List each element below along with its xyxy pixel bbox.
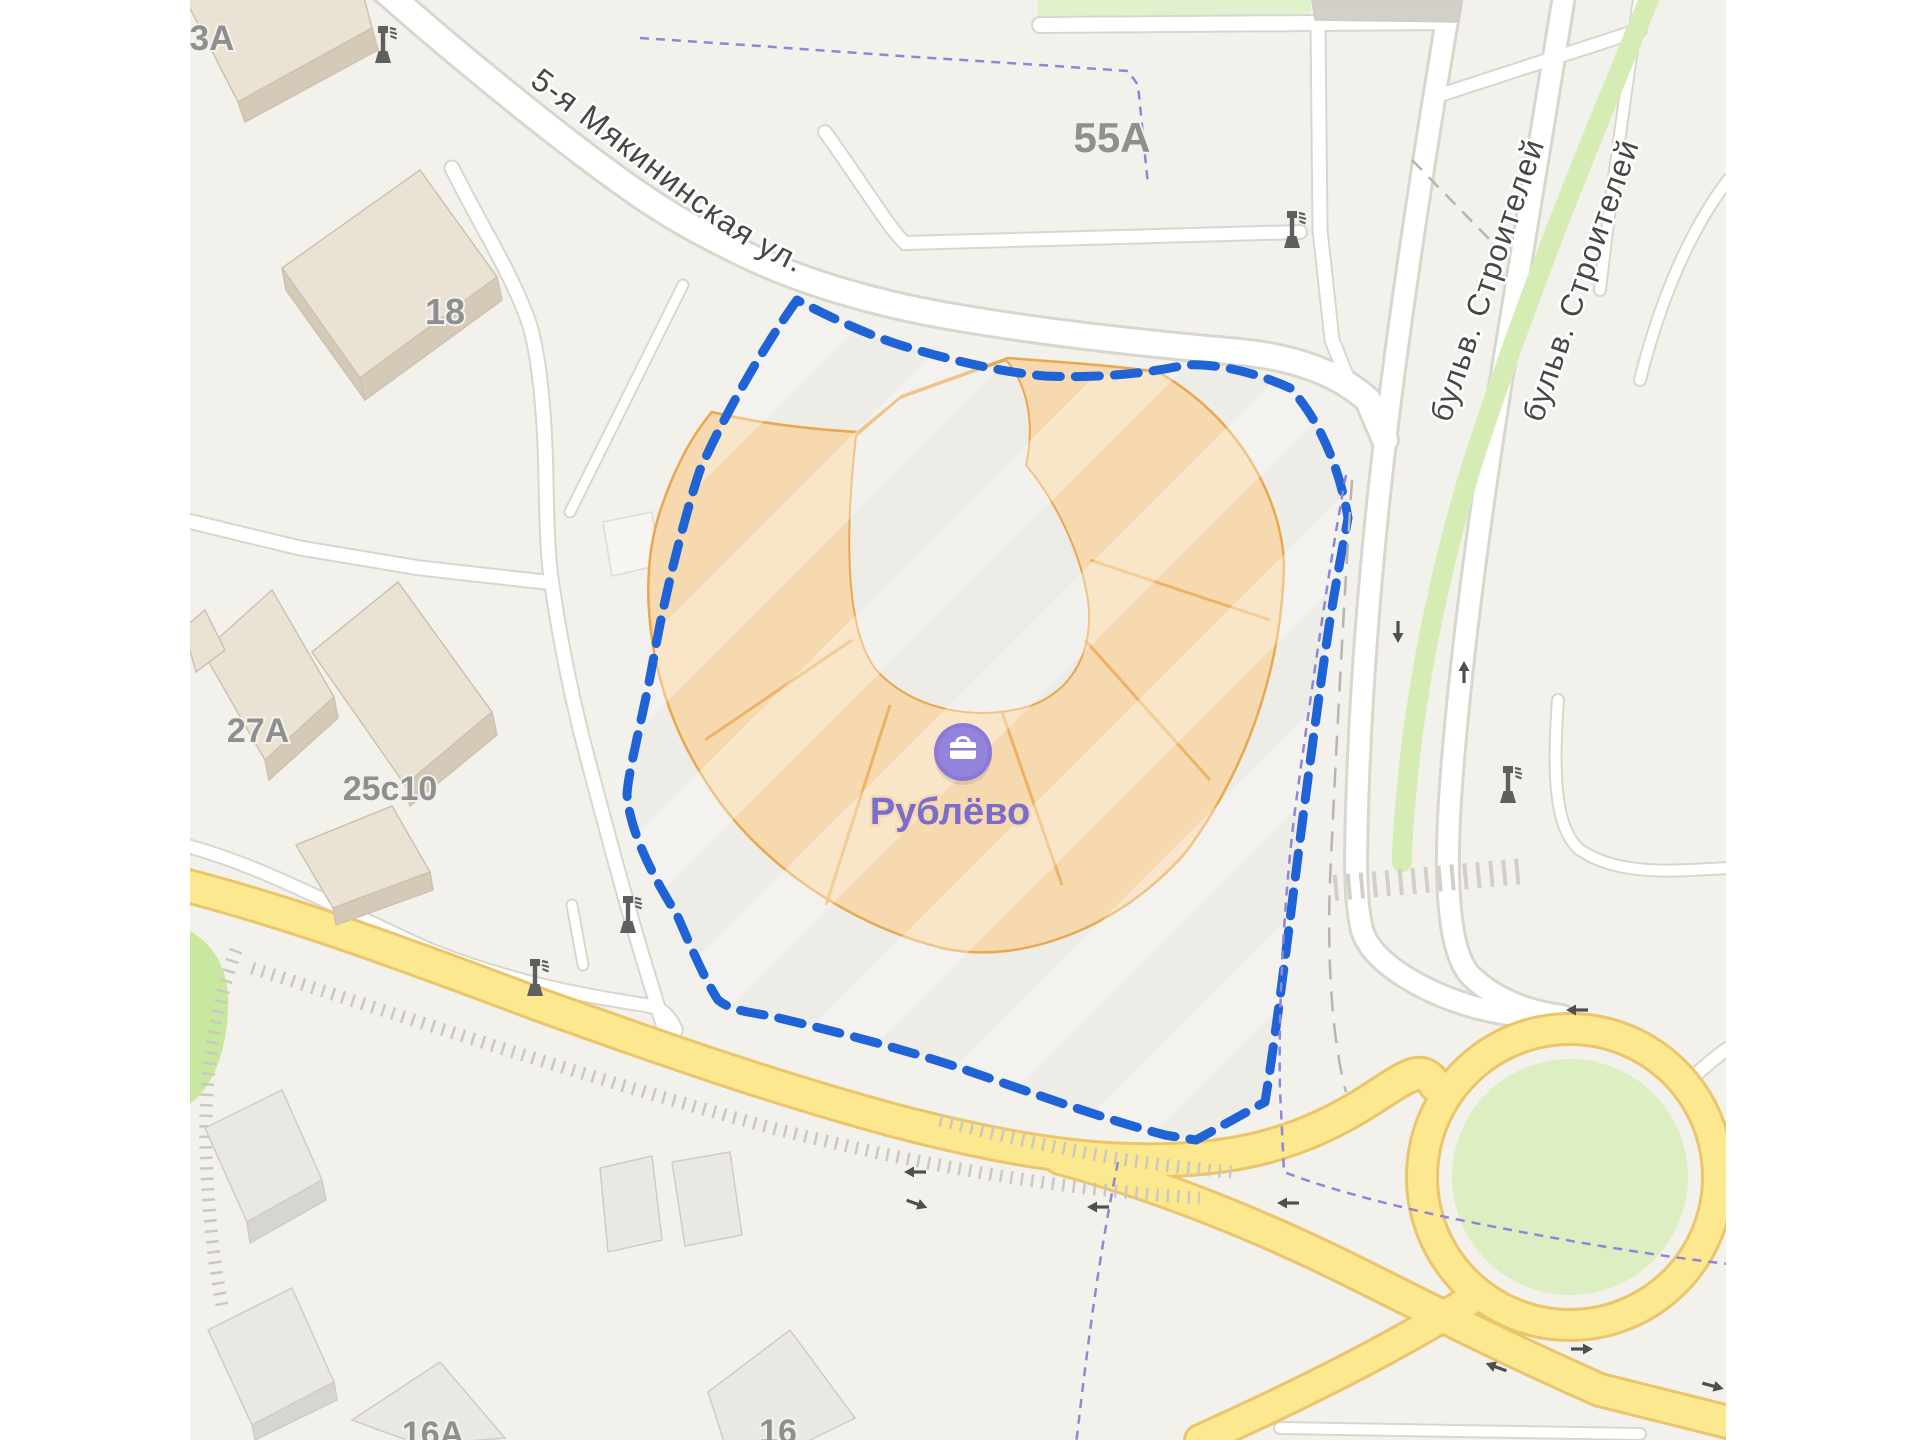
building-label-27a: 27А	[227, 712, 289, 750]
building-label-25c10: 25с10	[343, 770, 438, 808]
page-margin-left	[0, 0, 190, 1440]
map-svg: 5-я Мякининская ул. бульв. Строителей бу…	[190, 0, 1726, 1440]
building-label-55a: 55А	[1073, 114, 1150, 161]
building-label-3a: 3А	[190, 19, 234, 58]
building-label-16: 16	[759, 1413, 797, 1440]
roundabout-green-island	[1452, 1059, 1688, 1295]
poi-label: Рублёво	[870, 791, 1030, 833]
building-label-16a: 16А	[402, 1415, 464, 1440]
page-margin-right	[1726, 0, 1920, 1440]
map-canvas[interactable]: 5-я Мякининская ул. бульв. Строителей бу…	[190, 0, 1726, 1440]
building-label-18: 18	[425, 291, 465, 332]
